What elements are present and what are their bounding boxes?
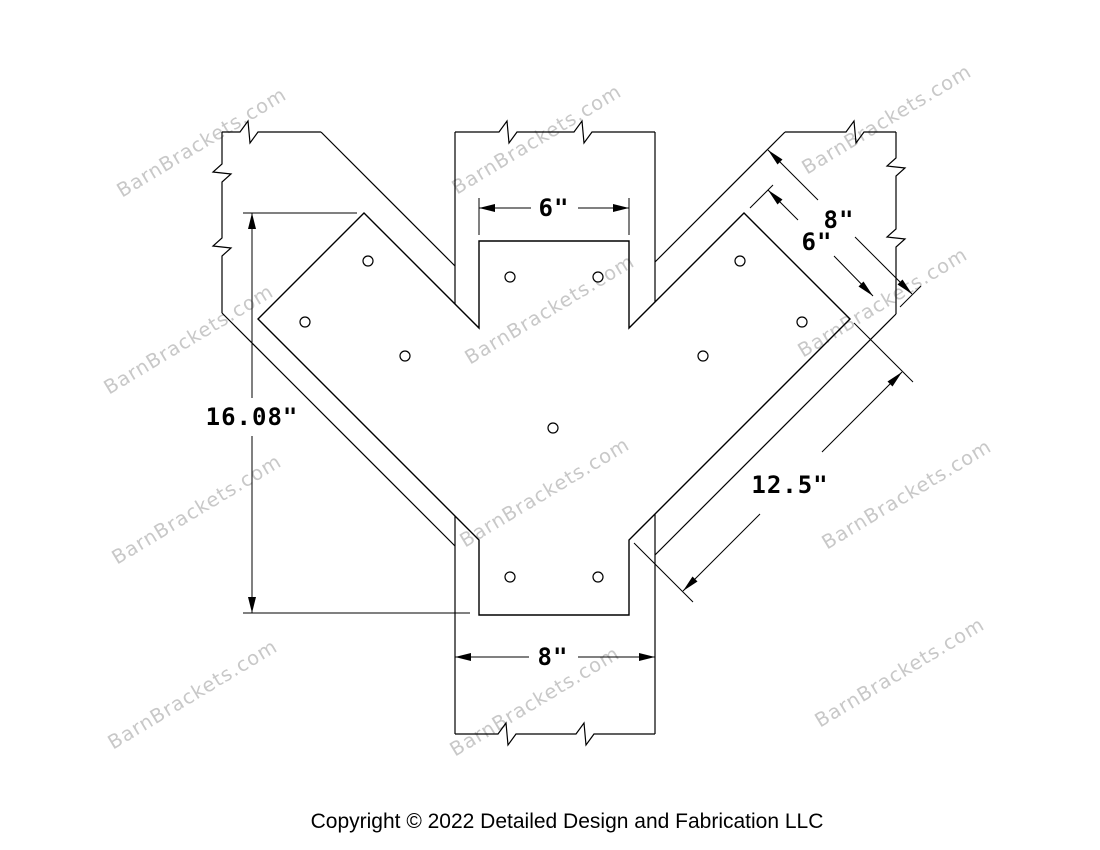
watermark-text: BarnBrackets.com (448, 80, 626, 199)
dimension-arm-length: 12.5" (634, 323, 913, 602)
dimension-post-width: 8" (455, 643, 655, 671)
dimension-label: 6" (802, 228, 833, 256)
dimension-label: 16.08" (206, 403, 299, 431)
watermark-text: BarnBrackets.com (461, 250, 639, 369)
right-brace-upper-edge (655, 132, 785, 262)
bolt-hole (548, 423, 558, 433)
watermark-text: BarnBrackets.com (100, 280, 278, 399)
drawing-canvas: BarnBrackets.com BarnBrackets.com BarnBr… (0, 0, 1100, 850)
dimension-extension-lines (750, 185, 773, 208)
watermark-text: BarnBrackets.com (446, 642, 624, 761)
left-brace-upper-edge (321, 132, 455, 266)
dimension-arrow (639, 653, 655, 661)
bolt-hole (505, 272, 515, 282)
copyright-text: Copyright © 2022 Detailed Design and Fab… (311, 810, 824, 833)
dimension-arm-plate-width: 6" (750, 185, 873, 296)
dimension-arrow (455, 653, 471, 661)
watermark-text: BarnBrackets.com (798, 60, 976, 179)
dimension-arrow (479, 204, 495, 212)
dimension-label: 8" (538, 643, 569, 671)
bolt-hole (363, 256, 373, 266)
dimension-label: 6" (539, 194, 570, 222)
bolt-hole (400, 351, 410, 361)
bolt-hole (593, 572, 603, 582)
bolt-hole (735, 256, 745, 266)
bracket-plate-outline (258, 213, 850, 615)
dimension-label: 12.5" (751, 471, 828, 499)
watermark-text: BarnBrackets.com (108, 450, 286, 569)
watermark-text: BarnBrackets.com (113, 83, 291, 202)
left-brace-end-cut-line (213, 132, 231, 313)
dimension-arrow (613, 204, 629, 212)
bracket-plate (258, 213, 850, 615)
bolt-hole (797, 317, 807, 327)
watermark-text: BarnBrackets.com (104, 635, 282, 754)
bracket-technical-drawing: BarnBrackets.com BarnBrackets.com BarnBr… (0, 0, 1100, 850)
dimension-extension-lines (634, 323, 913, 602)
watermark-text: BarnBrackets.com (794, 243, 972, 362)
bolt-hole (698, 351, 708, 361)
bolt-hole (593, 272, 603, 282)
watermark-text: BarnBrackets.com (818, 435, 996, 554)
watermark-text: BarnBrackets.com (811, 613, 989, 732)
dimension-plate-left-height: 16.08" (206, 213, 470, 613)
dimension-arrow (248, 597, 256, 613)
dimension-arrow (248, 213, 256, 229)
bolt-hole (505, 572, 515, 582)
dimension-plate-top-width: 6" (479, 194, 629, 235)
bolt-hole (300, 317, 310, 327)
watermark-text: BarnBrackets.com (456, 433, 634, 552)
